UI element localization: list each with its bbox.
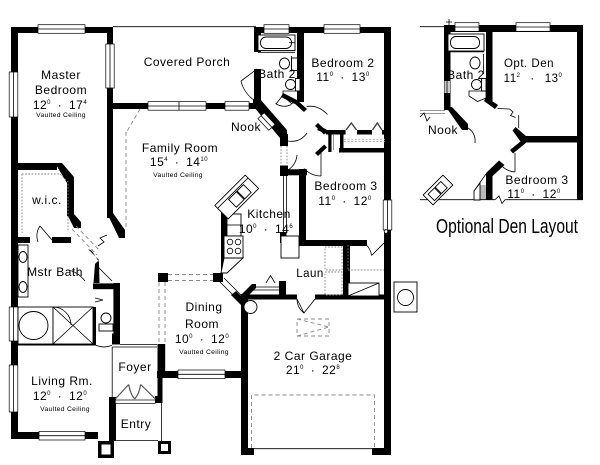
svg-text:Bath 2: Bath 2 — [258, 67, 296, 81]
svg-text:Vaulted Ceiling: Vaulted Ceiling — [179, 349, 229, 356]
svg-text:Bedroom 2: Bedroom 2 — [311, 56, 374, 70]
svg-text:Bedroom 3: Bedroom 3 — [314, 179, 377, 193]
svg-text:Vaulted Ceiling: Vaulted Ceiling — [153, 172, 203, 179]
svg-text:Master: Master — [41, 68, 81, 82]
svg-text:120 · 120: 120 · 120 — [33, 389, 88, 403]
svg-text:Mstr Bath: Mstr Bath — [27, 265, 83, 279]
svg-text:110 · 120: 110 · 120 — [318, 194, 372, 208]
svg-text:Vaulted Ceiling: Vaulted Ceiling — [40, 406, 90, 413]
svg-text:110 · 130: 110 · 130 — [316, 70, 370, 84]
svg-text:110 · 120: 110 · 120 — [507, 187, 561, 201]
svg-text:120 · 174: 120 · 174 — [33, 98, 88, 112]
svg-text:Opt. Den: Opt. Den — [504, 58, 554, 70]
svg-text:Laun: Laun — [296, 268, 324, 280]
svg-text:Family Room: Family Room — [142, 141, 218, 155]
svg-text:Nook: Nook — [428, 123, 459, 137]
svg-text:154 · 1410: 154 · 1410 — [150, 155, 208, 169]
svg-text:Bath 2: Bath 2 — [447, 68, 485, 82]
svg-text:2 Car Garage: 2 Car Garage — [274, 349, 353, 363]
svg-text:100 · 120: 100 · 120 — [175, 332, 230, 346]
svg-text:Foyer: Foyer — [118, 360, 151, 374]
svg-text:Entry: Entry — [121, 417, 152, 431]
svg-text:Optional Den Layout: Optional Den Layout — [436, 216, 578, 238]
svg-text:Vaulted Ceiling: Vaulted Ceiling — [36, 112, 86, 119]
svg-text:Covered Porch: Covered Porch — [144, 55, 231, 69]
svg-text:Living Rm.: Living Rm. — [31, 374, 93, 388]
svg-text:Dining: Dining — [185, 300, 222, 314]
svg-text:100 · 146: 100 · 146 — [239, 222, 294, 236]
svg-text:Bedroom: Bedroom — [35, 83, 87, 97]
svg-text:Nook: Nook — [231, 120, 262, 134]
svg-text:Room: Room — [185, 317, 219, 331]
svg-text:210 · 228: 210 · 228 — [286, 363, 341, 377]
svg-text:Kitchen: Kitchen — [247, 207, 291, 221]
svg-text:w.i.c.: w.i.c. — [31, 193, 62, 207]
svg-text:Bedroom 3: Bedroom 3 — [505, 173, 568, 187]
svg-text:112 · 130: 112 · 130 — [504, 73, 563, 85]
